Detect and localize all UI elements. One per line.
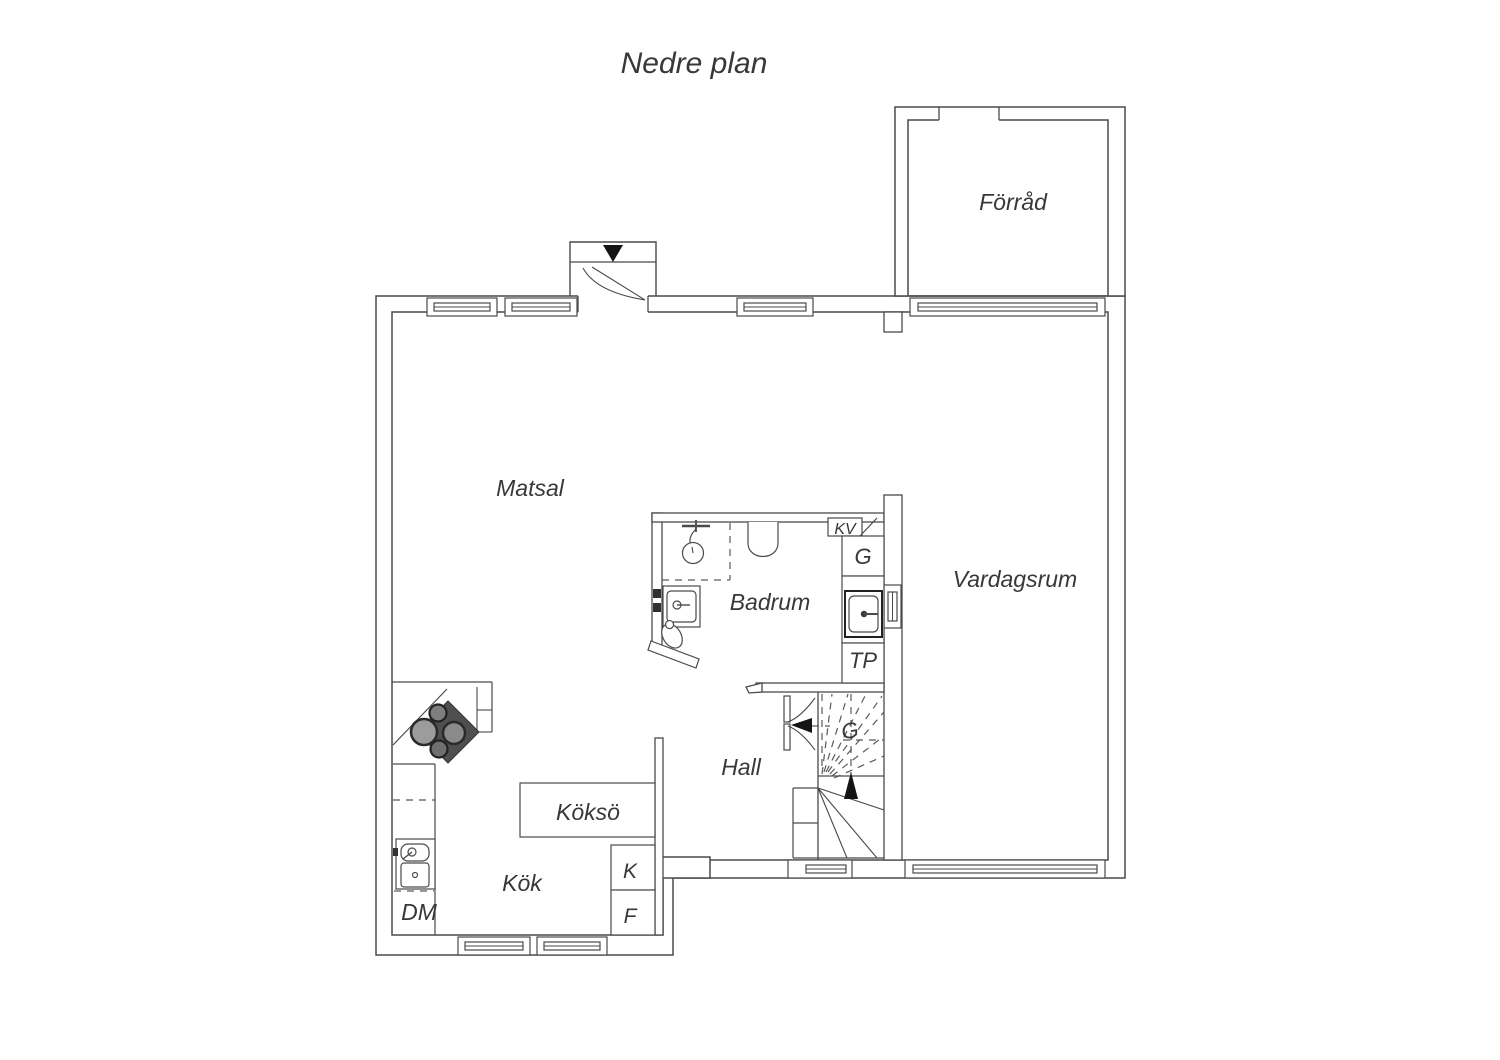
window-icon (505, 298, 577, 316)
toilet-icon (748, 522, 778, 557)
kitchen-sink-icon (393, 839, 435, 889)
window-icon (905, 860, 1105, 878)
label-fridge: K (623, 860, 638, 883)
label-wardrobe: G (854, 544, 871, 569)
stair-steps (793, 776, 884, 858)
room-label-hall: Hall (721, 754, 762, 780)
label-laundry-tower: TP (849, 648, 877, 673)
floor-plan-canvas: Nedre plan Förråd Matsal Vardagsrum Badr… (0, 0, 1500, 1060)
label-wardrobe-stairs: G (839, 717, 860, 745)
vardagsrum-wall-stub (884, 312, 902, 332)
page-title: Nedre plan (621, 47, 768, 80)
stairwell-wall (884, 495, 902, 860)
pass-through-window-icon (884, 585, 901, 628)
badrum-bottom-wall (756, 683, 884, 692)
window-icon (910, 298, 1105, 316)
window-icon (788, 860, 852, 878)
kitchen-hall-wall (655, 738, 663, 935)
laundry-sink-icon (845, 591, 882, 637)
window-icon (537, 937, 607, 955)
label-freezer: F (624, 905, 638, 928)
entrance (570, 242, 656, 314)
forrad-door-opening (939, 113, 999, 127)
room-label-badrum: Badrum (730, 589, 811, 615)
shower-icon (682, 520, 710, 564)
label-kokso: Köksö (556, 799, 620, 825)
room-label-forrad: Förråd (979, 189, 1048, 215)
entry-door-opening (578, 294, 648, 314)
room-labels: Nedre plan Förråd Matsal Vardagsrum Badr… (401, 47, 1077, 928)
window-icon (427, 298, 497, 316)
floor-plan-page: Nedre plan Förråd Matsal Vardagsrum Badr… (0, 0, 1500, 1060)
stair-direction-arrow-icon (791, 718, 812, 733)
wall-end-tip (746, 683, 762, 693)
wall-step (661, 857, 710, 878)
window-icon (458, 937, 530, 955)
room-label-matsal: Matsal (496, 475, 565, 501)
label-kv: KV (834, 521, 857, 538)
window-icon (737, 298, 813, 316)
tap-icon (393, 848, 398, 856)
stairs (784, 692, 884, 860)
label-dishwasher: DM (401, 899, 438, 925)
room-label-kok: Kök (502, 870, 543, 896)
room-label-vardagsrum: Vardagsrum (953, 566, 1077, 592)
badrum-left-wall (652, 513, 662, 650)
windows (427, 298, 1105, 955)
main-house-wall (376, 296, 1125, 955)
stove-icon (411, 701, 479, 763)
